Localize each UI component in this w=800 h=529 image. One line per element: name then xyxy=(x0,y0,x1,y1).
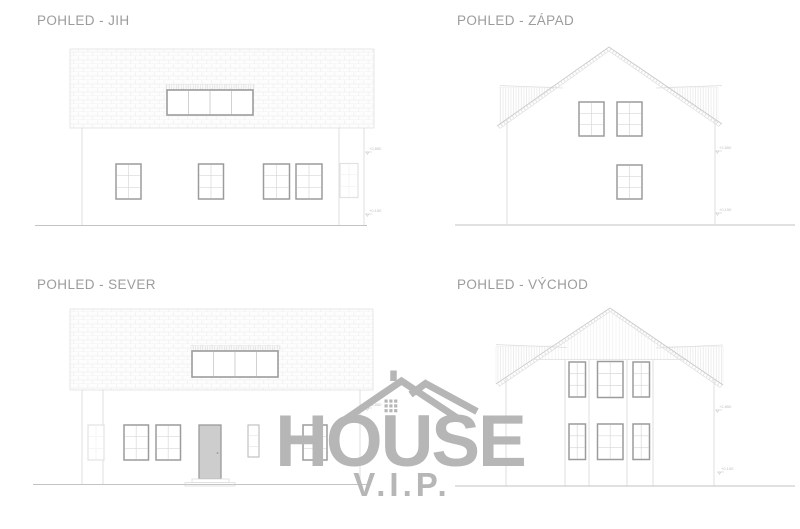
south-window-2 xyxy=(199,164,224,199)
north-dormer-hatch xyxy=(191,346,280,351)
elevation-sheet: POHLED - JIH POHLED - ZÁPAD POHLED - SEV… xyxy=(0,0,800,529)
svg-text:+0,150: +0,150 xyxy=(719,207,732,212)
east-lower-window-2 xyxy=(598,424,624,460)
south-dormer-hatch xyxy=(166,85,254,90)
east-upper-window-3 xyxy=(633,362,650,397)
west-upper-window-2 xyxy=(617,102,642,136)
south-side-window xyxy=(340,164,358,198)
west-lower-window xyxy=(617,165,642,199)
east-upper-window-1 xyxy=(569,362,586,397)
west-level-marker-bottom: +0,150 xyxy=(715,207,732,215)
east-lower-window-3 xyxy=(633,424,650,460)
north-entrance-door xyxy=(199,425,221,479)
svg-text:+2,850: +2,850 xyxy=(369,146,382,151)
north-elevation: +2,850 xyxy=(33,309,382,486)
svg-text:+0,150: +0,150 xyxy=(369,208,382,213)
west-wall xyxy=(507,119,715,224)
west-upper-window-1 xyxy=(579,102,604,136)
north-level-marker-top: +2,850 xyxy=(365,402,382,410)
north-window-3 xyxy=(303,425,327,460)
east-level-marker-top: +2,850 xyxy=(715,404,732,412)
east-elevation: +2,850 +0,150 xyxy=(455,308,795,486)
north-roof-band-window xyxy=(192,351,278,377)
svg-text:+2,850: +2,850 xyxy=(719,145,732,150)
south-window-4 xyxy=(296,164,322,199)
south-window-3 xyxy=(264,164,290,199)
svg-text:+2,850: +2,850 xyxy=(369,402,382,407)
east-gable-cladding xyxy=(536,311,685,359)
east-lower-window-1 xyxy=(569,424,586,460)
north-window-1 xyxy=(124,425,149,460)
east-upper-window-2 xyxy=(598,362,624,398)
elevations-drawing: +2,850 +0,150 xyxy=(0,0,800,529)
north-side-window xyxy=(88,425,104,460)
west-level-marker-top: +2,850 xyxy=(715,145,732,153)
west-right-eaves-hatch xyxy=(667,87,718,123)
south-level-marker-top: +2,850 xyxy=(365,146,382,154)
east-level-marker-bottom: +0,150 xyxy=(717,466,734,474)
west-elevation: +2,850 +0,150 xyxy=(455,47,795,225)
svg-text:+0,150: +0,150 xyxy=(721,466,734,471)
north-narrow-window xyxy=(248,425,259,457)
south-elevation: +2,850 +0,150 xyxy=(35,49,382,226)
south-level-marker-bottom: +0,150 xyxy=(365,208,382,216)
svg-text:+2,850: +2,850 xyxy=(719,404,732,409)
north-window-2 xyxy=(156,425,181,460)
south-window-1 xyxy=(116,164,141,199)
south-roof-band-window xyxy=(167,90,253,115)
